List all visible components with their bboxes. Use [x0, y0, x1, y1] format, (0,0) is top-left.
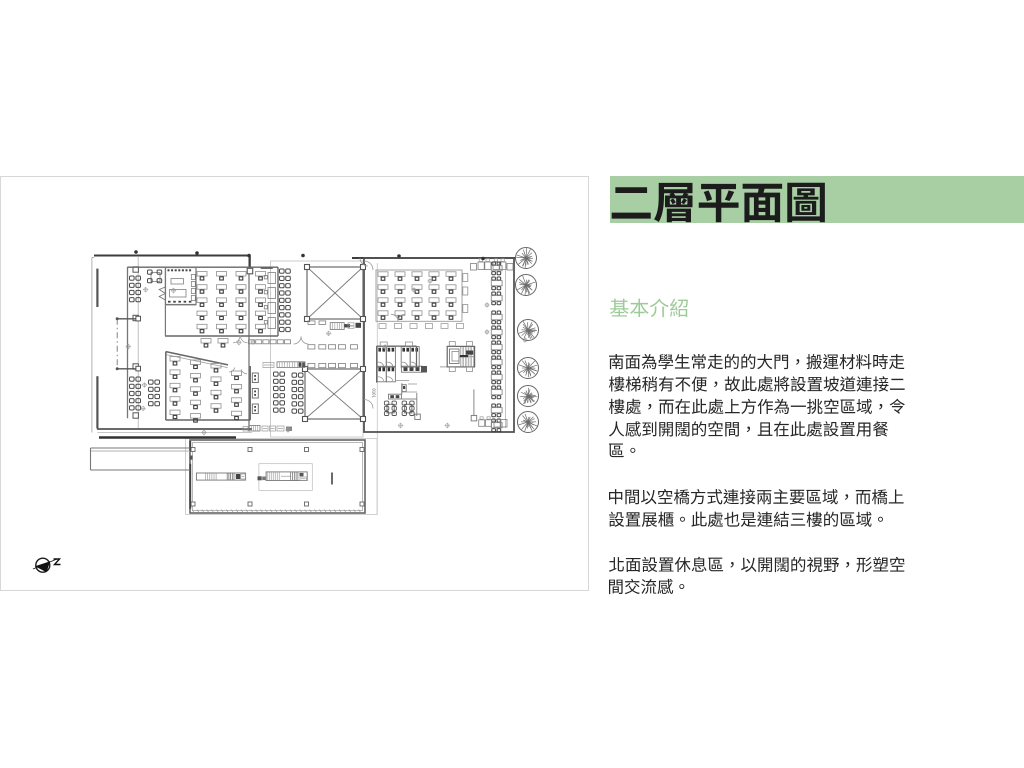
- svg-text:0101: 0101: [372, 389, 377, 399]
